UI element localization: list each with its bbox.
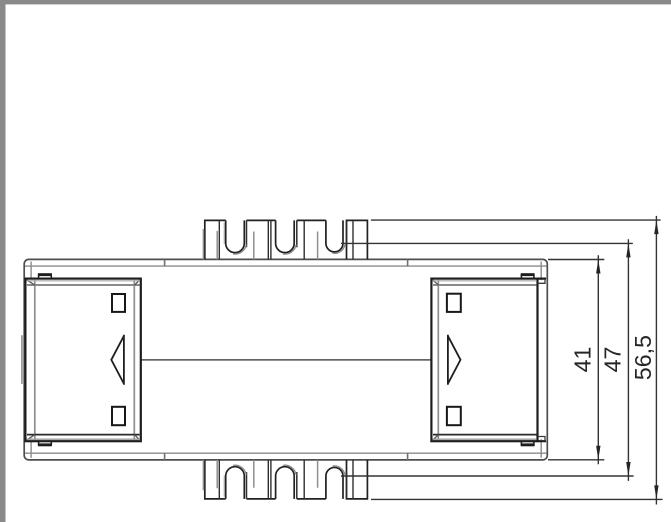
svg-text:41: 41 (569, 347, 595, 373)
svg-text:56,5: 56,5 (630, 335, 656, 380)
svg-text:47: 47 (600, 347, 626, 373)
